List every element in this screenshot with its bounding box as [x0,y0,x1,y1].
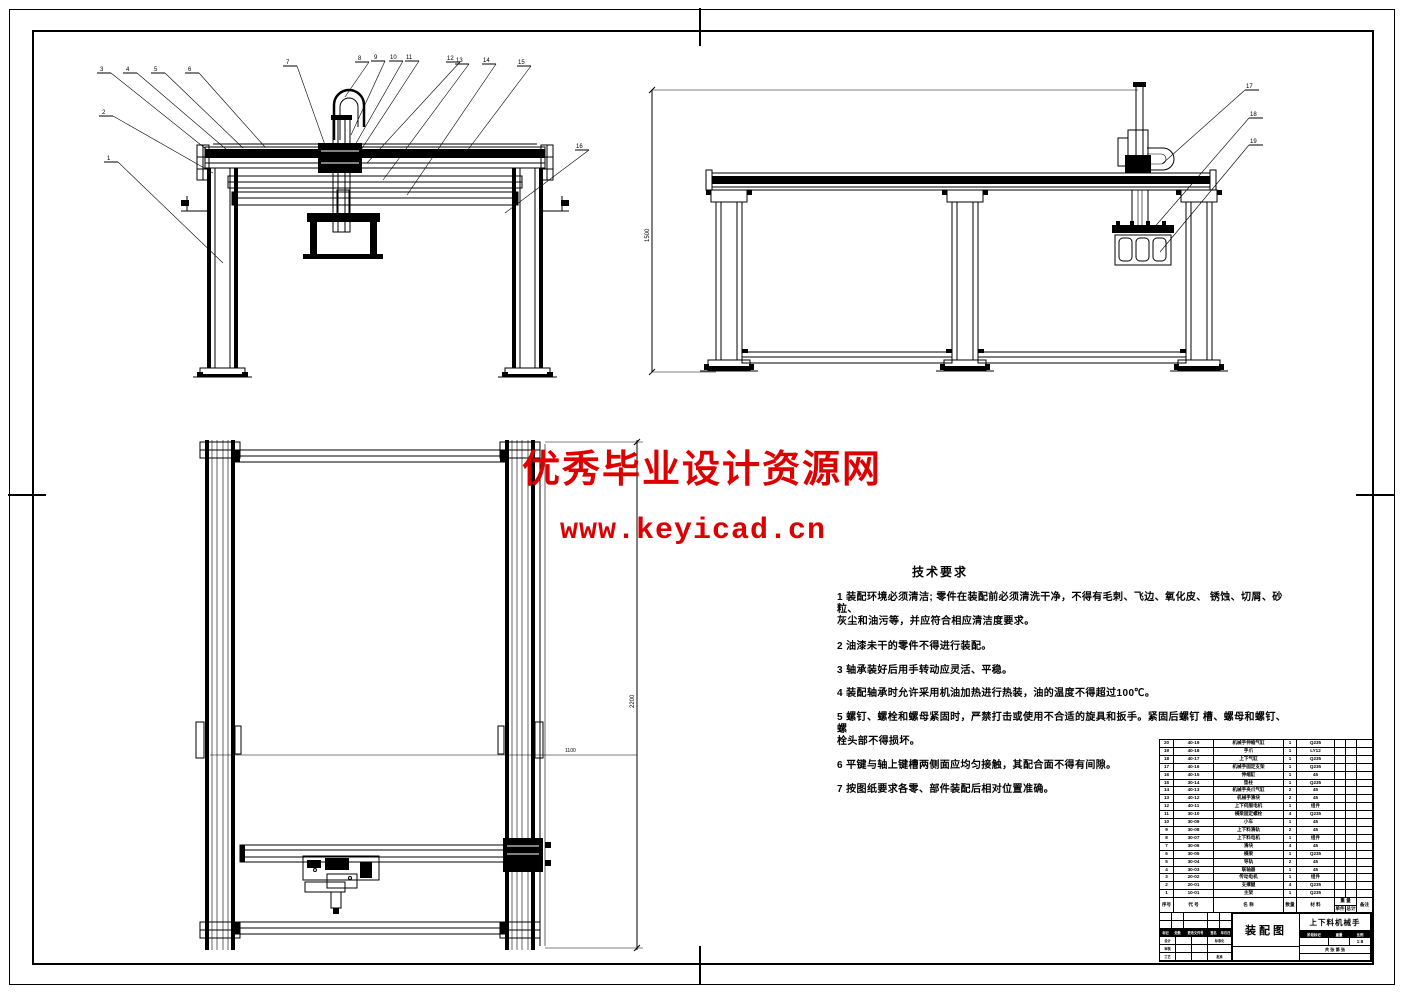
center-mark-right [1356,494,1394,496]
bom-row: 1030-09小车145 [1160,819,1373,827]
bom-row: 930-08上下料滑轨245 [1160,826,1373,834]
svg-text:19: 19 [1250,139,1257,145]
bom-row: 530-04导轨245 [1160,858,1373,866]
side-view-structure [700,82,1228,371]
rev-label: 年月日 [1220,929,1232,937]
svg-text:6: 6 [188,67,192,73]
bom-row: 830-07上下料电机1组件 [1160,834,1373,842]
svg-text:8: 8 [358,56,362,62]
watermark-site-name: 优秀毕业设计资源网 [522,438,882,493]
svg-text:14: 14 [483,58,490,64]
svg-text:16: 16 [576,144,583,150]
plan-view: 1100 2200 [195,430,645,960]
bom-row: 1130-10横梁固定螺栓4Q235 [1160,811,1373,819]
audit-label: 审核 [1160,945,1176,953]
bom-row: 1740-16机械手固定支架1Q235 [1160,763,1373,771]
svg-text:15: 15 [518,60,525,66]
design-label: 设计 [1160,937,1176,945]
svg-text:13: 13 [456,58,463,64]
tech-requirement-line: 5 螺钉、螺栓和螺母紧固时，严禁打击或使用不合适的旋具和扳手。紧固后螺钉 槽、螺… [837,712,1289,736]
bom-body: 2040-19机械手伸缩气缸1Q2351940-18手爪1LY121840-17… [1160,740,1373,898]
tech-requirement-line: 1 装配环境必须清洁; 零件在装配前必须清洗干净，不得有毛刺、飞边、氧化皮、 锈… [837,592,1289,616]
standard-label: 标准化 [1208,937,1232,945]
bom-row: 1240-11上下伺服电机1组件 [1160,803,1373,811]
svg-text:18: 18 [1250,112,1257,118]
bom-row: 1530-14垫柱1Q235 [1160,779,1373,787]
svg-text:9: 9 [374,55,378,61]
bom-row: 320-02传动电机1组件 [1160,874,1373,882]
revision-grid: 标记 处数 更改文件号 签名 年月日 设计 标准化 审核 工艺 批准 [1160,913,1232,961]
bom-row: 220-01支撑腿4Q235 [1160,882,1373,890]
bom-row: 2040-19机械手伸缩气缸1Q235 [1160,740,1373,748]
svg-text:2: 2 [102,110,106,116]
bom-row: 1840-17上下气缸1Q235 [1160,755,1373,763]
center-mark-bottom [699,946,701,984]
drawing-sheet: 1 2 3 4 5 6 7 8 9 10 11 12 13 14 15 16 1… [0,0,1403,992]
svg-text:10: 10 [390,55,397,61]
rev-label: 签名 [1208,929,1220,937]
process-label: 工艺 [1160,953,1176,961]
bom-row: 630-05横梁1Q235 [1160,850,1373,858]
tech-requirement-line: 2 油漆未干的零件不得进行装配。 [837,641,1289,653]
svg-text:12: 12 [447,56,454,62]
svg-text:1: 1 [107,156,111,162]
drawing-code-cell [1232,946,1300,961]
bom-row: 1440-13机械手夹爪气缸245 [1160,787,1373,795]
svg-text:7: 7 [286,60,290,66]
bom-row: 1640-15伸缩缸145 [1160,771,1373,779]
rev-label: 处数 [1172,929,1184,937]
title-block: 标记 处数 更改文件号 签名 年月日 设计 标准化 审核 工艺 批准 装配图 上… [1159,912,1372,962]
svg-text:1500: 1500 [645,228,651,242]
tech-requirements-title: 技术要求 [912,563,968,580]
bom-table: 2040-19机械手伸缩气缸1Q2351940-18手爪1LY121840-17… [1159,739,1373,913]
svg-text:5: 5 [154,67,158,73]
bom-row: 430-03联轴器145 [1160,866,1373,874]
svg-text:17: 17 [1246,84,1253,90]
watermark-site-url: www.keyicad.cn [560,514,826,548]
tech-requirement-line: 灰尘和油污等，并应符合相应清洁度要求。 [837,616,1289,628]
project-name: 上下料机械手 [1299,913,1371,931]
rev-label: 更改文件号 [1184,929,1208,937]
bom-header-row: 序号 代 号 名 称 数量 材 料 重 量 备注 [1160,898,1373,906]
front-view: 1 2 3 4 5 6 7 8 9 10 11 12 13 14 15 16 [85,45,600,390]
svg-text:11: 11 [406,55,413,61]
bom-row: 730-06滑块445 [1160,842,1373,850]
bom-row: 110-01主架1Q235 [1160,890,1373,898]
svg-text:1100: 1100 [565,748,576,754]
svg-text:2200: 2200 [630,694,636,708]
center-mark-top [699,8,701,46]
svg-text:4: 4 [126,67,130,73]
bom-row: 1940-18手爪1LY12 [1160,747,1373,755]
center-mark-left [8,494,46,496]
tech-requirement-line: 3 轴承装好后用手转动应灵活、平稳。 [837,665,1289,677]
side-view-dimension: 1500 [645,87,1138,375]
side-view: 1500 [640,60,1280,390]
bom-row: 1340-12机械手滑块245 [1160,795,1373,803]
approve-label: 批准 [1208,953,1232,961]
tech-requirement-line: 4 装配轴承时允许采用机油加热进行热装，油的温度不得超过100℃。 [837,688,1289,700]
drawing-name: 装配图 [1232,913,1300,947]
svg-text:3: 3 [100,67,104,73]
front-view-structure [181,90,569,377]
rev-label: 标记 [1160,929,1172,937]
